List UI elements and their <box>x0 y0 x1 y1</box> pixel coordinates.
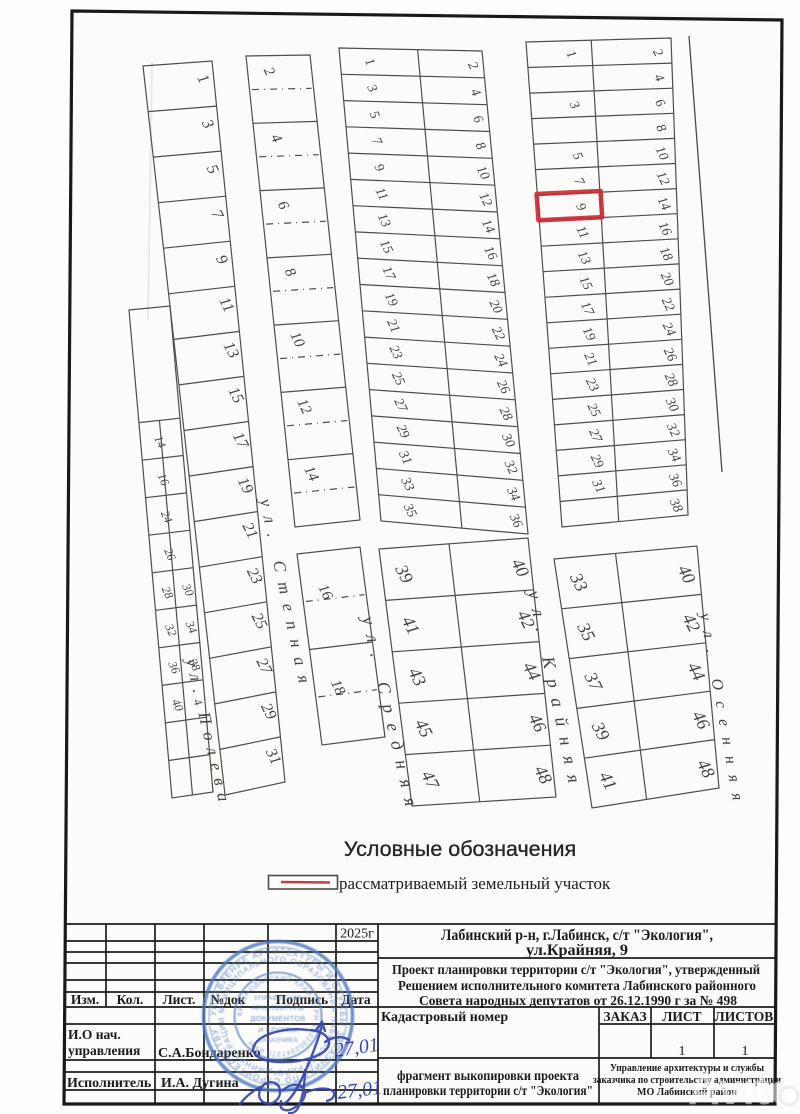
svg-text:Решением исполнительного комит: Решением исполнительного комитета Лабинс… <box>398 979 756 994</box>
svg-text:ЛИСТОВ: ЛИСТОВ <box>715 1009 774 1024</box>
svg-text:ЗАКАЗ: ЗАКАЗ <box>603 1009 646 1024</box>
svg-text:фрагмент выкопировки проекта: фрагмент выкопировки проекта <box>397 1068 579 1083</box>
svg-text:ДОКУМЕНТОВ: ДОКУМЕНТОВ <box>250 1014 305 1023</box>
svg-text:Кадастровый номер: Кадастровый номер <box>381 1010 508 1025</box>
svg-text:И.О нач.: И.О нач. <box>68 1027 121 1042</box>
svg-text:Изм.: Изм. <box>71 992 99 1007</box>
svg-text:управления: управления <box>68 1043 140 1058</box>
svg-text:Лист.: Лист. <box>163 992 196 1007</box>
svg-text:УПРАВЛЕНИЕ: УПРАВЛЕНИЕ <box>254 995 302 1002</box>
svg-text:Совета народных депутатов от 2: Совета народных депутатов от 26.12.1990 … <box>419 994 737 1009</box>
svg-text:Исполнитель: Исполнитель <box>67 1076 152 1091</box>
svg-text:ЗАКАЗЧИКА: ЗАКАЗЧИКА <box>258 1037 299 1044</box>
svg-text:И.А. Дугина: И.А. Дугина <box>161 1076 239 1091</box>
svg-text:Проект планировки территории: Проект планировки территории с/т "Эколог… <box>392 963 760 978</box>
svg-text:ЛИСТ: ЛИСТ <box>662 1009 701 1024</box>
svg-text:Avito: Avito <box>688 1065 796 1114</box>
svg-text:Кол.: Кол. <box>117 992 144 1007</box>
svg-text:рассматриваемый земельный учас: рассматриваемый земельный участок <box>339 874 611 893</box>
svg-text:АРХИТЕКТУРЫ: АРХИТЕКТУРЫ <box>252 1005 305 1012</box>
svg-text:1: 1 <box>742 1044 749 1059</box>
svg-text:планировки территории с/т "Эк: планировки территории с/т "Экология" <box>383 1083 593 1098</box>
svg-text:1: 1 <box>679 1044 686 1059</box>
svg-text:ул.Крайняя, 9: ул.Крайняя, 9 <box>526 942 628 959</box>
svg-text:Условные обозначения: Условные обозначения <box>344 837 576 861</box>
svg-text:2025г: 2025г <box>340 927 374 942</box>
